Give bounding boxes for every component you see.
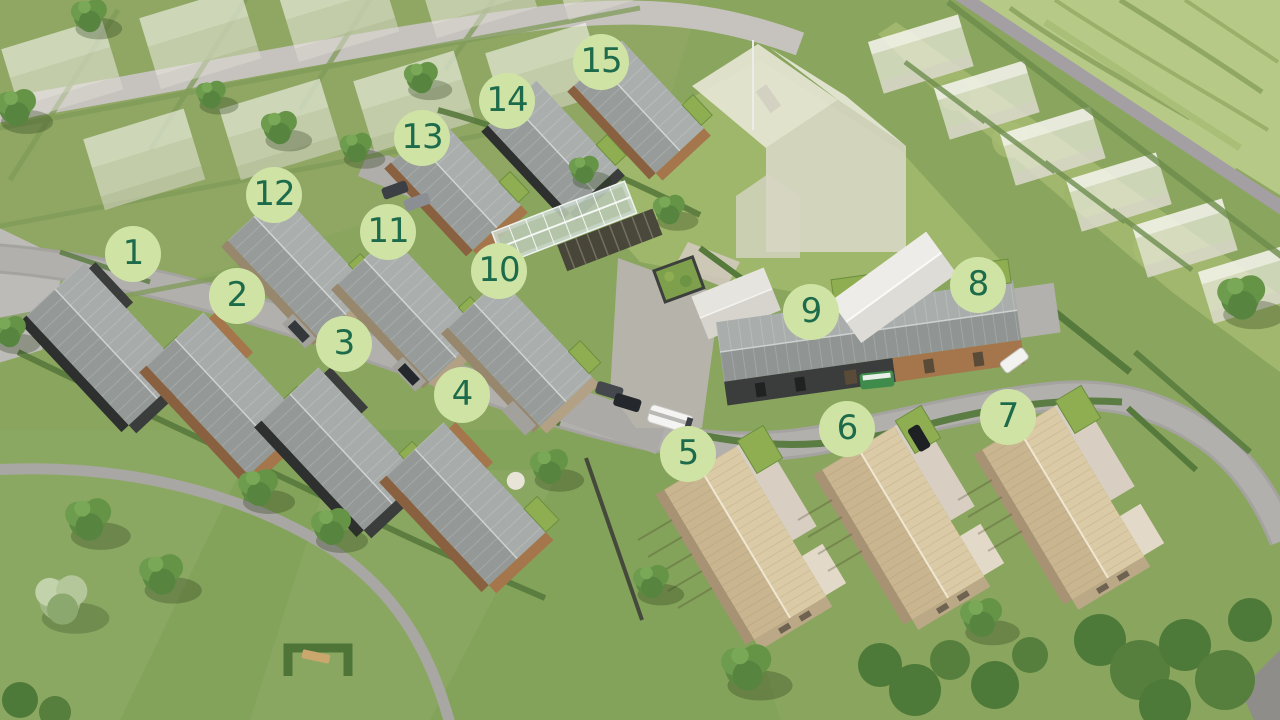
plot-marker-layer: 123456789101112131415 — [0, 0, 1280, 720]
plot-marker-7[interactable]: 7 — [980, 389, 1036, 445]
plot-marker-15[interactable]: 15 — [573, 34, 629, 90]
plot-marker-1[interactable]: 1 — [105, 226, 161, 282]
plot-marker-5[interactable]: 5 — [660, 426, 716, 482]
plot-marker-4[interactable]: 4 — [434, 367, 490, 423]
plot-marker-11[interactable]: 11 — [360, 204, 416, 260]
site-plan: 123456789101112131415 — [0, 0, 1280, 720]
plot-marker-3[interactable]: 3 — [316, 316, 372, 372]
plot-marker-9[interactable]: 9 — [783, 284, 839, 340]
plot-marker-2[interactable]: 2 — [209, 268, 265, 324]
plot-marker-13[interactable]: 13 — [394, 110, 450, 166]
plot-marker-10[interactable]: 10 — [471, 243, 527, 299]
plot-marker-12[interactable]: 12 — [246, 167, 302, 223]
plot-marker-8[interactable]: 8 — [950, 257, 1006, 313]
plot-marker-6[interactable]: 6 — [819, 401, 875, 457]
plot-marker-14[interactable]: 14 — [479, 73, 535, 129]
